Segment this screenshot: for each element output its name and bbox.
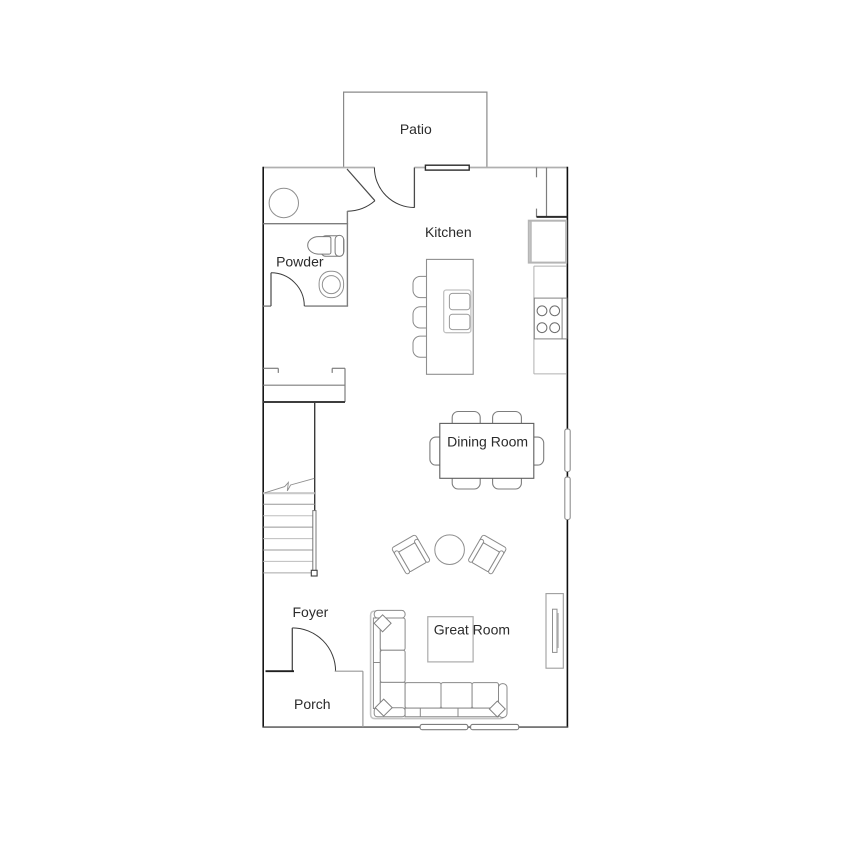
svg-text:Porch: Porch bbox=[294, 696, 331, 712]
svg-text:Foyer: Foyer bbox=[293, 604, 329, 620]
svg-text:Dining Room: Dining Room bbox=[447, 434, 528, 450]
svg-text:Great Room: Great Room bbox=[434, 622, 510, 638]
svg-text:Kitchen: Kitchen bbox=[425, 224, 472, 240]
svg-text:Powder: Powder bbox=[276, 253, 324, 269]
svg-text:Patio: Patio bbox=[400, 121, 432, 137]
